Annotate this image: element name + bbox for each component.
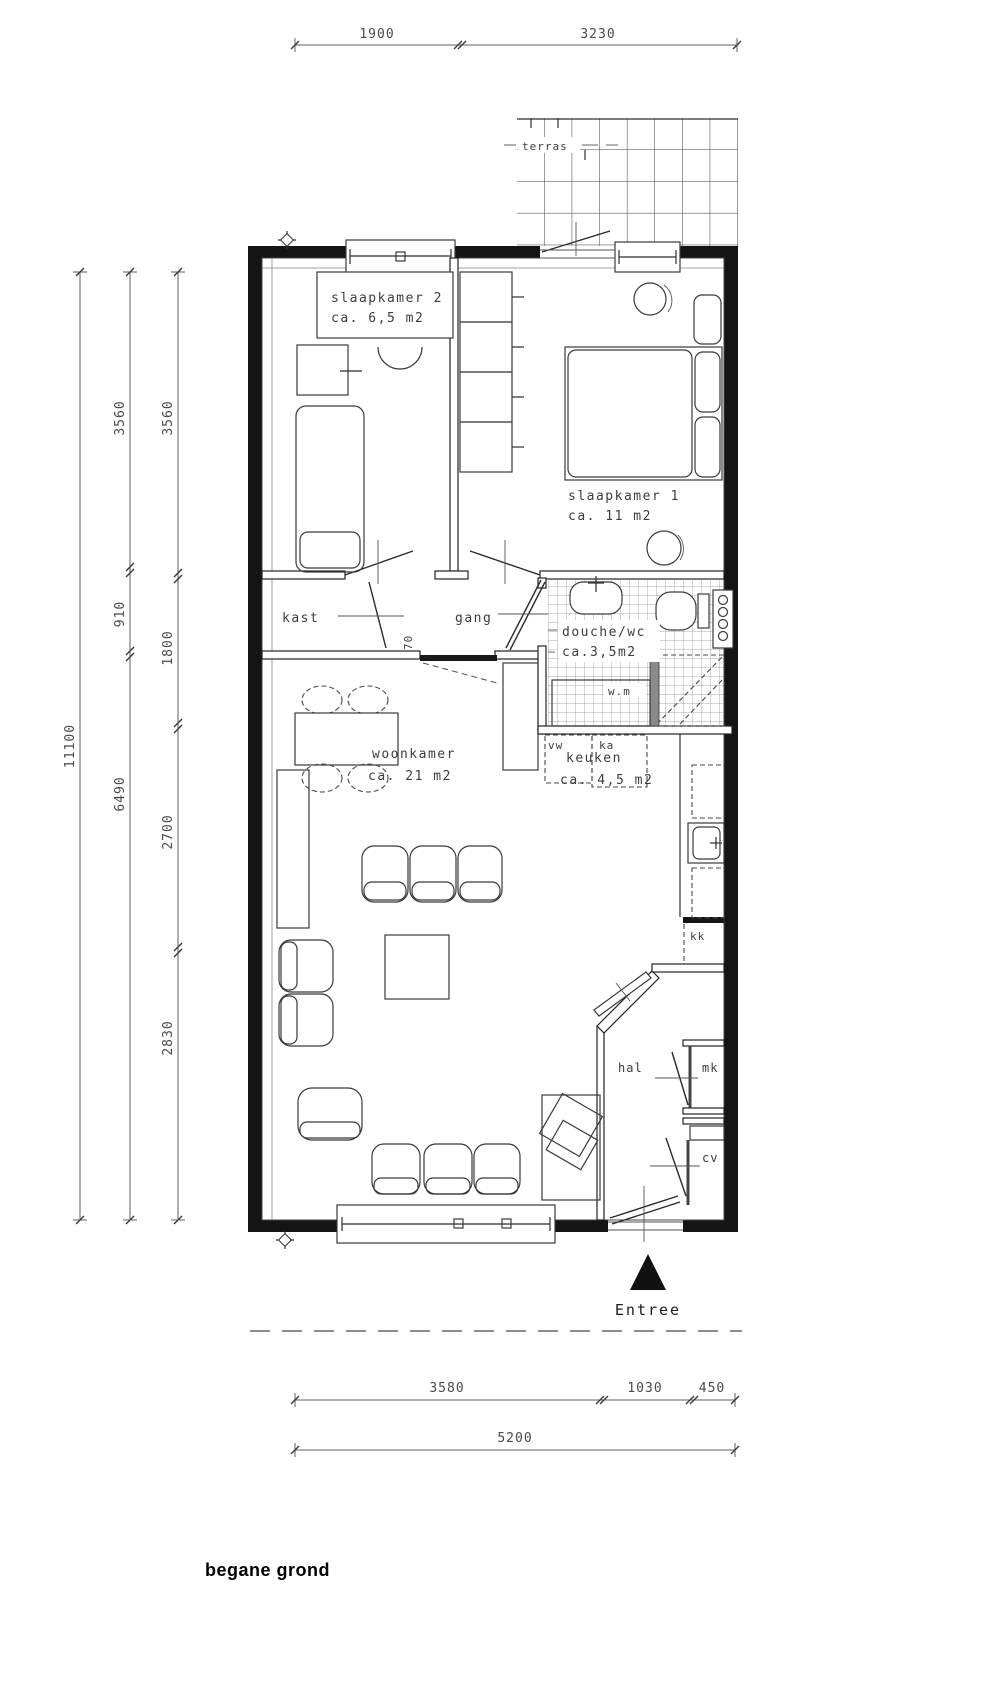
window-top-slaapkamer1: [615, 242, 680, 272]
entree-arrow-icon: [630, 1254, 666, 1290]
kast-label: kast: [282, 611, 319, 626]
gang-label: gang: [455, 611, 492, 626]
entree-marker: Entree: [615, 1254, 681, 1319]
nightstand: [694, 295, 721, 344]
terrace-door-opening: [540, 250, 615, 258]
keuken-room: vw ka kk keuken ca. 4,5 m2: [545, 734, 724, 962]
dim-bottom-total: 5200: [291, 1431, 739, 1457]
stool-2: [647, 531, 681, 565]
entree-door: [608, 1186, 683, 1242]
wardrobe: [460, 272, 524, 472]
cv-label: cv: [702, 1151, 718, 1165]
dim-bottom-2: 1030: [627, 1381, 662, 1396]
dim-left-inner-2: 1800: [161, 630, 176, 665]
radiator: [713, 590, 733, 648]
bedside-table: [297, 345, 348, 395]
chair-arc: [378, 347, 422, 369]
bed-double: [565, 295, 722, 480]
vw-label: vw: [548, 739, 563, 752]
entree-label: Entree: [615, 1301, 681, 1319]
bookshelf: [277, 770, 309, 928]
sofa-two-seat: [279, 940, 333, 1046]
window-bottom-woonkamer: [337, 1205, 555, 1243]
sofa-bottom: [298, 1088, 520, 1194]
douche-room: w.m douche/wc ca.3,5m2: [548, 576, 733, 726]
hal-label: hal: [618, 1061, 643, 1075]
chaise-chair: [540, 1094, 603, 1200]
douche-area: ca.3,5m2: [562, 645, 637, 660]
cabinet-upper: [692, 765, 724, 818]
cv-closet: cv: [650, 1118, 724, 1205]
slaapkamer1-label: slaapkamer 1: [568, 489, 680, 504]
dim-left-mid-2: 910: [113, 601, 128, 627]
door-douche: [498, 580, 548, 650]
dim-left-inner-4: 2830: [161, 1020, 176, 1055]
mk-label: mk: [702, 1061, 718, 1075]
slaapkamer2-area: ca. 6,5 m2: [331, 311, 424, 326]
dim-bottom-1: 3580: [429, 1381, 464, 1396]
dim-left-total: 11100: [63, 724, 78, 768]
bed-pillow: [300, 532, 360, 568]
wasmachine-label: w.m: [608, 685, 631, 698]
kitchen-sink: [688, 823, 724, 863]
dim-left-mid: 3560 910 6490: [113, 268, 137, 1224]
door-width-label: 70: [402, 635, 415, 650]
woonkamer-label: woonkamer: [372, 747, 456, 762]
page-title: begane grond: [205, 1560, 330, 1580]
dim-bottom-3: 450: [699, 1381, 725, 1396]
slaapkamer2-label: slaapkamer 2: [331, 291, 443, 306]
door-slaapkamer2: [345, 540, 413, 584]
sofa-three-seat: [362, 846, 502, 902]
terras-area: terras: [504, 118, 738, 256]
dim-left-inner: 3560 1800 2700 2830: [161, 268, 185, 1224]
dim-left-inner-3: 2700: [161, 814, 176, 849]
meterkast: mk: [655, 1040, 724, 1114]
hal-room: hal mk cv: [618, 1040, 724, 1205]
cabinet-lower: [692, 868, 724, 918]
dim-top-1: 1900: [359, 27, 394, 42]
kk-label: kk: [690, 930, 705, 943]
slaapkamer1-room: slaapkamer 1 ca. 11 m2: [460, 272, 722, 565]
dim-left-total: 11100: [63, 268, 87, 1224]
floorplan-drawing: terras: [0, 0, 1000, 1701]
coffee-table: [385, 935, 449, 999]
bed-single: [296, 406, 364, 572]
keuken-label: keuken: [566, 751, 622, 766]
dim-top-2: 3230: [580, 27, 615, 42]
slaapkamer2-room: slaapkamer 2 ca. 6,5 m2: [296, 272, 453, 572]
dim-left-inner-1: 3560: [161, 400, 176, 435]
dim-bottom-inner: 3580 1030 450: [291, 1381, 739, 1407]
slaapkamer1-area: ca. 11 m2: [568, 509, 652, 524]
door-slaapkamer1: [470, 540, 540, 584]
window-top-slaapkamer2: [346, 240, 455, 273]
woonkamer-area: ca. 21 m2: [368, 769, 452, 784]
door-kast: [338, 582, 404, 648]
toilet: [656, 592, 709, 630]
douche-label: douche/wc: [562, 625, 646, 640]
door-woonkamer: [420, 655, 497, 683]
dim-bottom-total: 5200: [497, 1431, 532, 1446]
survey-marker-bottom: [276, 1231, 294, 1249]
keuken-area: ca. 4,5 m2: [560, 773, 653, 788]
tall-cabinet: [503, 663, 538, 770]
dim-left-mid-1: 3560: [113, 400, 128, 435]
terras-label: terras: [522, 140, 568, 153]
stool: [634, 283, 666, 315]
dim-top: 1900 3230: [291, 27, 741, 52]
dim-left-mid-3: 6490: [113, 776, 128, 811]
floorplan-canvas: terras: [0, 0, 1000, 1701]
